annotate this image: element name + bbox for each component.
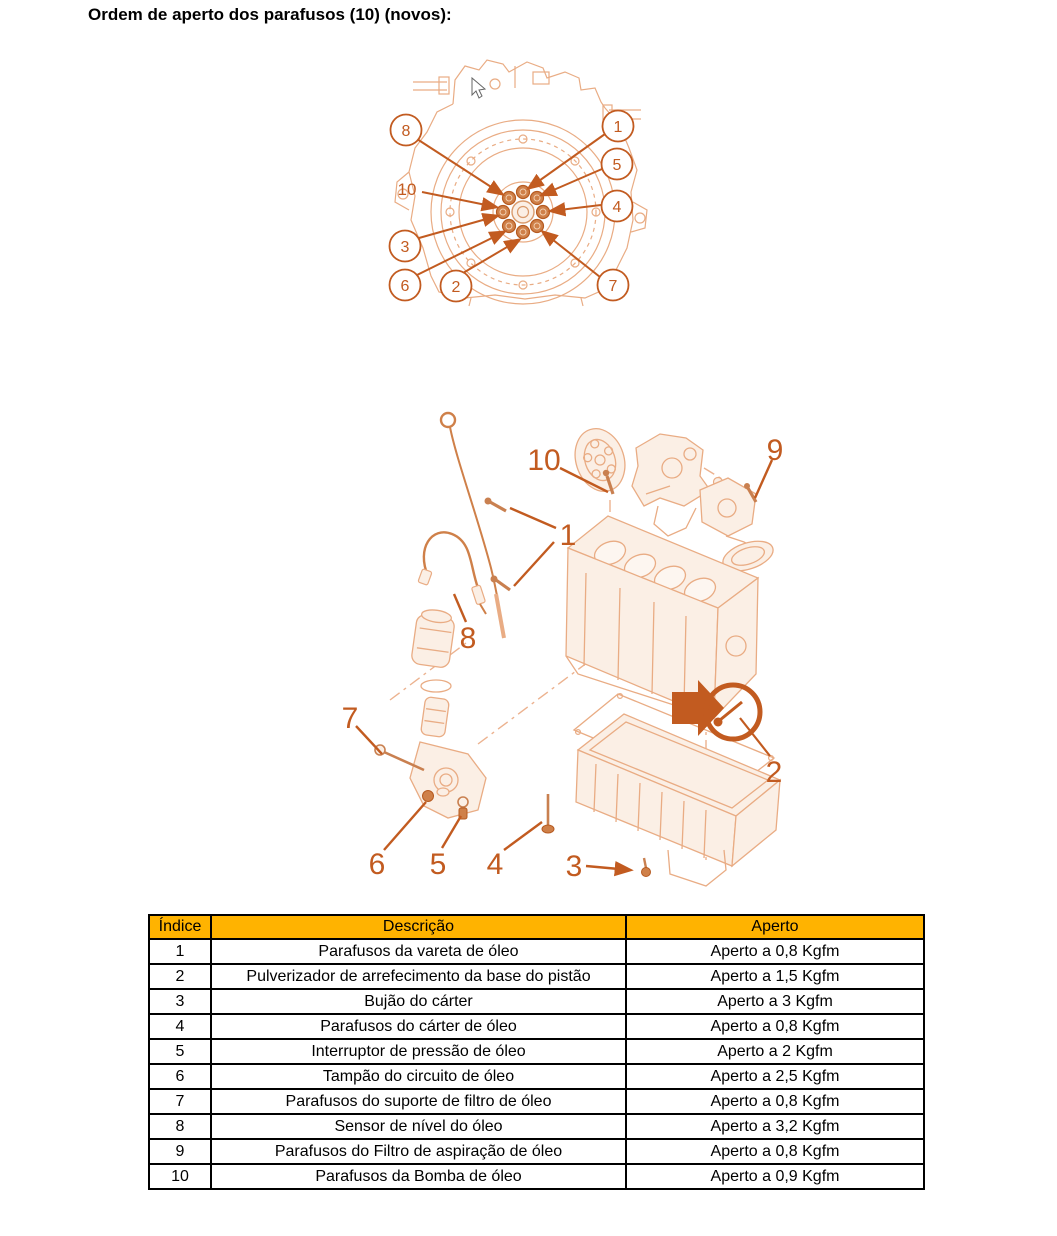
table-row: 8 Sensor de nível do óleo Aperto a 3,2 K… xyxy=(149,1114,924,1139)
table-row: 4 Parafusos do cárter de óleo Aperto a 0… xyxy=(149,1014,924,1039)
callout-7: 7 xyxy=(598,270,629,301)
callout-1: 1 xyxy=(603,111,634,142)
table-row: 9 Parafusos do Filtro de aspiração de ól… xyxy=(149,1139,924,1164)
header-descricao: Descrição xyxy=(211,915,626,939)
flywheel-bolt-ring xyxy=(497,186,550,239)
header-indice: Índice xyxy=(149,915,211,939)
svg-text:2: 2 xyxy=(452,279,461,296)
table-row: 5 Interruptor de pressão de óleo Aperto … xyxy=(149,1039,924,1064)
cell-descricao: Parafusos da vareta de óleo xyxy=(211,939,626,964)
cell-descricao: Parafusos do Filtro de aspiração de óleo xyxy=(211,1139,626,1164)
cell-indice: 8 xyxy=(149,1114,211,1139)
callout-10: 10 xyxy=(398,180,417,199)
dipstick-bolts xyxy=(485,498,511,591)
cell-indice: 2 xyxy=(149,964,211,989)
torque-spec-table: Índice Descrição Aperto 1 Parafusos da v… xyxy=(148,914,925,1190)
label-2: 2 xyxy=(766,756,783,789)
svg-text:1: 1 xyxy=(614,119,623,136)
cell-descricao: Bujão do cárter xyxy=(211,989,626,1014)
cell-indice: 6 xyxy=(149,1064,211,1089)
svg-text:5: 5 xyxy=(613,157,622,174)
cell-aperto: Aperto a 2 Kgfm xyxy=(626,1039,924,1064)
oil-dipstick xyxy=(441,413,504,638)
svg-text:10: 10 xyxy=(398,180,417,199)
callout-3: 3 xyxy=(390,231,421,262)
callout-arrows xyxy=(417,134,605,277)
callout-2: 2 xyxy=(441,271,472,302)
label-1: 1 xyxy=(560,519,577,552)
page-title: Ordem de aperto dos parafusos (10) (novo… xyxy=(88,5,452,25)
cell-indice: 4 xyxy=(149,1014,211,1039)
callout-6: 6 xyxy=(390,270,421,301)
table-row: 6 Tampão do circuito de óleo Aperto a 2,… xyxy=(149,1064,924,1089)
cell-indice: 7 xyxy=(149,1089,211,1114)
cell-descricao: Pulverizador de arrefecimento da base do… xyxy=(211,964,626,989)
oil-pressure-switch xyxy=(458,797,468,819)
cell-indice: 1 xyxy=(149,939,211,964)
label-9: 9 xyxy=(767,434,784,467)
mouse-cursor-icon xyxy=(472,78,485,98)
cell-descricao: Parafusos do cárter de óleo xyxy=(211,1014,626,1039)
cell-aperto: Aperto a 0,9 Kgfm xyxy=(626,1164,924,1189)
oil-pan-bolt xyxy=(542,794,554,833)
cell-indice: 10 xyxy=(149,1164,211,1189)
oil-pan xyxy=(576,714,780,886)
header-aperto: Aperto xyxy=(626,915,924,939)
oil-pump-sprocket xyxy=(567,422,632,498)
cell-aperto: Aperto a 2,5 Kgfm xyxy=(626,1064,924,1089)
cell-descricao: Sensor de nível do óleo xyxy=(211,1114,626,1139)
cell-indice: 9 xyxy=(149,1139,211,1164)
label-7: 7 xyxy=(342,702,359,735)
cell-indice: 3 xyxy=(149,989,211,1014)
cell-descricao: Tampão do circuito de óleo xyxy=(211,1064,626,1089)
cell-descricao: Parafusos do suporte de filtro de óleo xyxy=(211,1089,626,1114)
manual-page: Ordem de aperto dos parafusos (10) (novo… xyxy=(0,0,1057,1236)
svg-text:6: 6 xyxy=(401,278,410,295)
table-row: 10 Parafusos da Bomba de óleo Aperto a 0… xyxy=(149,1164,924,1189)
flywheel-tightening-diagram: 8 1 5 4 10 3 6 2 7 xyxy=(375,52,685,307)
label-5: 5 xyxy=(430,848,447,881)
label-4: 4 xyxy=(487,848,504,881)
cell-indice: 5 xyxy=(149,1039,211,1064)
svg-text:8: 8 xyxy=(402,123,411,140)
table-row: 1 Parafusos da vareta de óleo Aperto a 0… xyxy=(149,939,924,964)
cell-aperto: Aperto a 3,2 Kgfm xyxy=(626,1114,924,1139)
cell-aperto: Aperto a 3 Kgfm xyxy=(626,989,924,1014)
cell-aperto: Aperto a 0,8 Kgfm xyxy=(626,1014,924,1039)
callout-8: 8 xyxy=(391,115,422,146)
callout-4: 4 xyxy=(602,191,633,222)
callout-5: 5 xyxy=(602,149,633,180)
cell-aperto: Aperto a 1,5 Kgfm xyxy=(626,964,924,989)
table-header-row: Índice Descrição Aperto xyxy=(149,915,924,939)
svg-text:3: 3 xyxy=(401,239,410,256)
oil-pump-body xyxy=(632,434,710,536)
oil-level-sensor xyxy=(418,532,486,614)
svg-text:7: 7 xyxy=(609,278,618,295)
cell-descricao: Interruptor de pressão de óleo xyxy=(211,1039,626,1064)
table-row: 3 Bujão do cárter Aperto a 3 Kgfm xyxy=(149,989,924,1014)
cell-descricao: Parafusos da Bomba de óleo xyxy=(211,1164,626,1189)
oil-circuit-exploded-diagram: 10 9 1 8 7 6 5 4 3 2 xyxy=(328,398,843,898)
cell-aperto: Aperto a 0,8 Kgfm xyxy=(626,1089,924,1114)
label-3: 3 xyxy=(566,850,583,883)
cell-aperto: Aperto a 0,8 Kgfm xyxy=(626,1139,924,1164)
label-6: 6 xyxy=(369,848,386,881)
table-row: 7 Parafusos do suporte de filtro de óleo… xyxy=(149,1089,924,1114)
label-10: 10 xyxy=(527,444,560,477)
table-row: 2 Pulverizador de arrefecimento da base … xyxy=(149,964,924,989)
oil-drain-plug xyxy=(642,858,651,877)
label-8: 8 xyxy=(460,622,477,655)
cell-aperto: Aperto a 0,8 Kgfm xyxy=(626,939,924,964)
svg-text:4: 4 xyxy=(613,199,622,216)
